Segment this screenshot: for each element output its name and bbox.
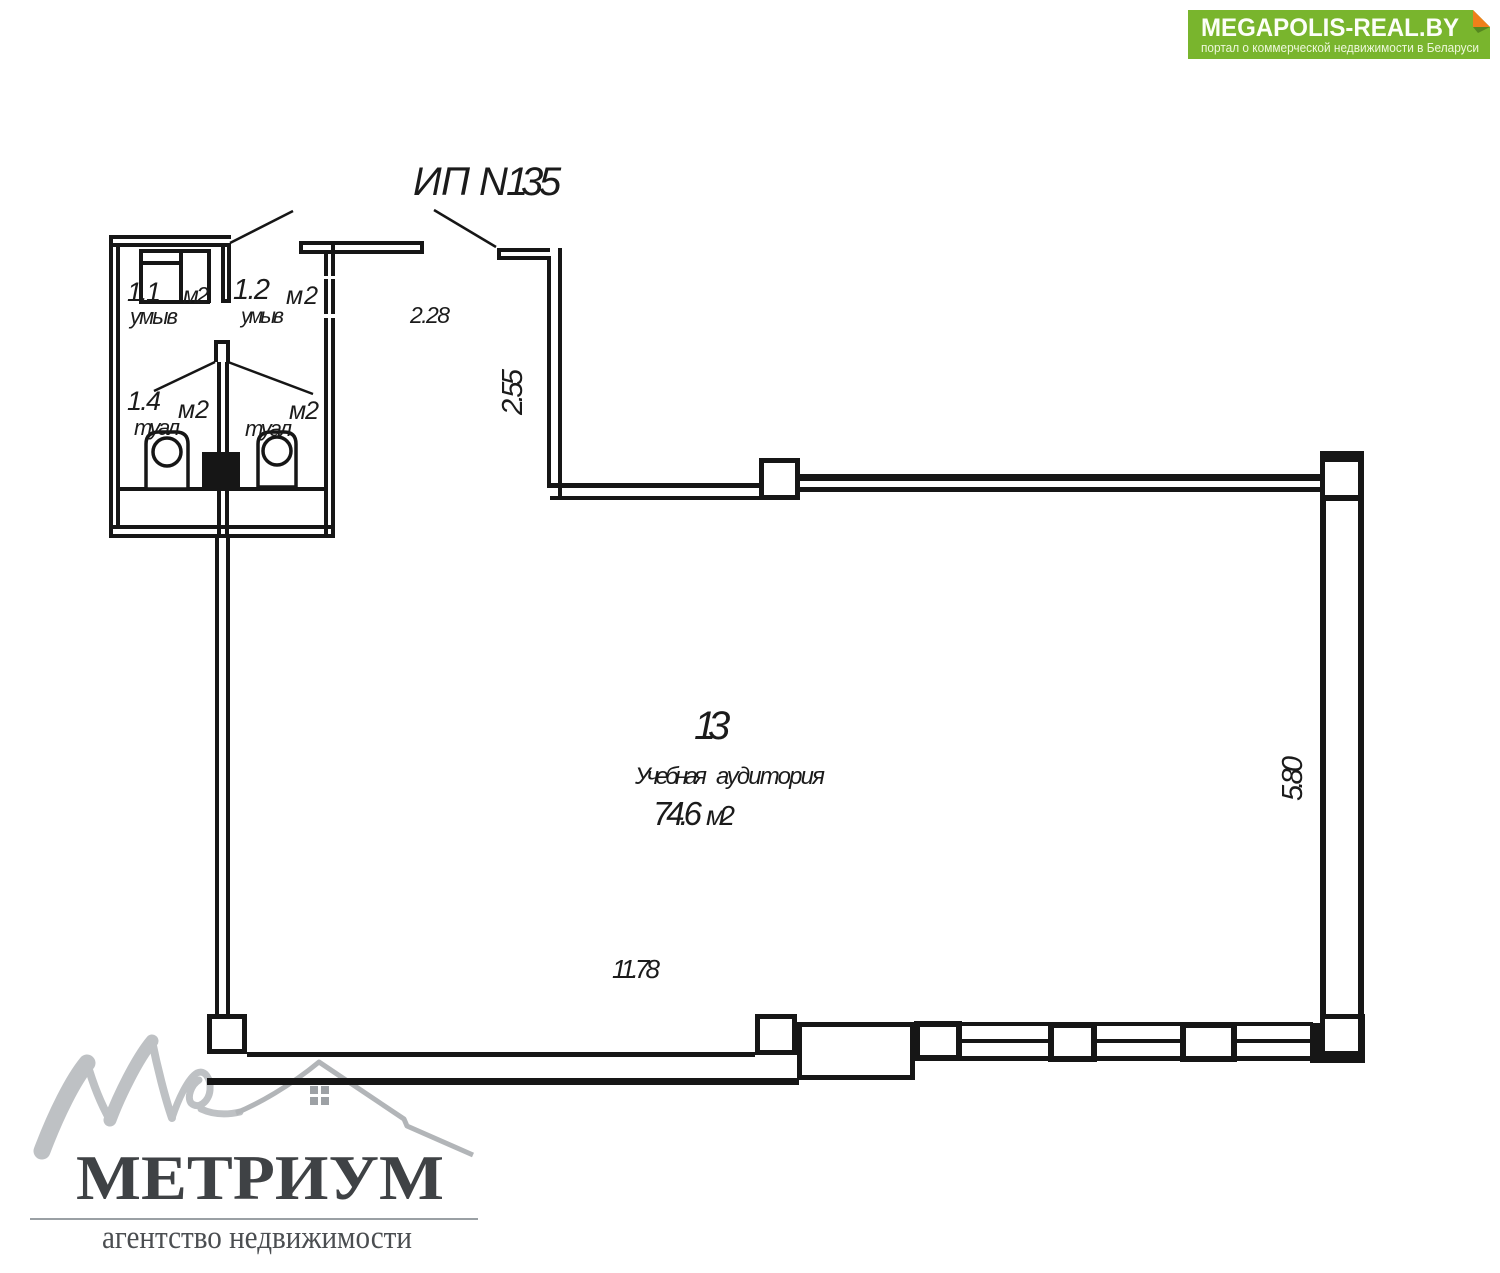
svg-text:умыв: умыв: [128, 304, 178, 329]
svg-text:ИП: ИП: [413, 160, 471, 204]
svg-text:аудитория: аудитория: [716, 763, 825, 790]
svg-text:м2: м2: [286, 282, 318, 310]
svg-text:агентство недвижимости: агентство недвижимости: [102, 1220, 412, 1256]
svg-text:портал о коммерческой недвижим: портал о коммерческой недвижимости в Бел…: [1201, 40, 1479, 55]
svg-text:м2: м2: [183, 282, 209, 308]
svg-text:5.80: 5.80: [1277, 756, 1309, 801]
svg-text:Учебная: Учебная: [634, 763, 707, 790]
svg-text:74.6: 74.6: [653, 795, 703, 832]
svg-text:2.55: 2.55: [497, 368, 529, 416]
svg-text:м2: м2: [289, 397, 319, 425]
svg-text:3: 3: [708, 704, 730, 748]
svg-text:туал: туал: [134, 415, 180, 440]
svg-text:1.2: 1.2: [233, 274, 270, 306]
svg-text:2.28: 2.28: [409, 302, 450, 328]
svg-text:умыв: умыв: [239, 305, 284, 328]
svg-text:N: N: [479, 160, 508, 204]
svg-text:МЕТРИУМ: МЕТРИУМ: [76, 1142, 444, 1213]
svg-text:1.1: 1.1: [127, 277, 161, 307]
svg-text:11.78: 11.78: [612, 954, 661, 984]
svg-text:5: 5: [539, 160, 562, 204]
svg-text:м2: м2: [178, 396, 209, 424]
svg-text:1.4: 1.4: [127, 386, 161, 416]
svg-text:туал: туал: [245, 416, 292, 441]
svg-text:MEGAPOLIS-REAL.BY: MEGAPOLIS-REAL.BY: [1201, 14, 1459, 42]
svg-text:м2: м2: [706, 800, 735, 831]
